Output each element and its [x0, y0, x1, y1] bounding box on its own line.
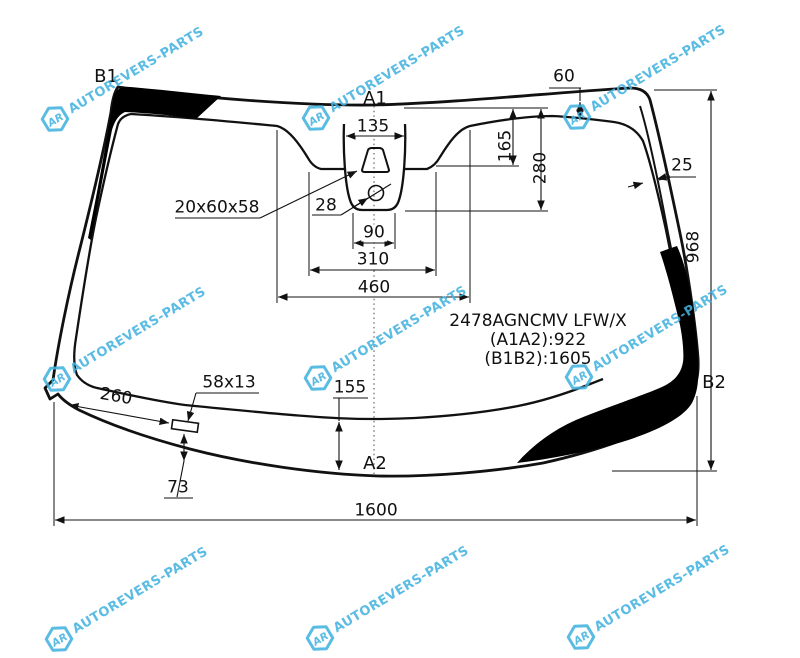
- dim-90: 90: [361, 225, 387, 242]
- mirror-pad: [172, 420, 199, 433]
- diagram-canvas: [0, 0, 800, 600]
- svg-text:AR: AR: [49, 631, 70, 650]
- watermark: AR AUTOREVERS-PARTS: [562, 618, 600, 656]
- frit-band-inner-edge-top: [131, 114, 344, 169]
- dim-155: 155: [334, 380, 366, 397]
- axis-label-b2: B2: [702, 374, 726, 392]
- camera-window: [362, 148, 389, 172]
- part-a1a2-length: (A1A2):922: [449, 331, 627, 350]
- axis-label-a2: A2: [363, 455, 387, 473]
- dim-280: 280: [533, 152, 550, 184]
- dim-25: 25: [671, 158, 693, 175]
- axis-label-b1: B1: [94, 68, 118, 86]
- dim-60: 60: [553, 69, 575, 86]
- dim-310: 310: [355, 252, 391, 269]
- dim-28: 28: [315, 198, 337, 215]
- windshield-diagram: 1600 968 460 310 90 135 165 280 60 25 15…: [0, 0, 800, 600]
- dim-73: 73: [167, 480, 189, 497]
- dim-total-height: 968: [686, 231, 703, 263]
- svg-text:AR: AR: [571, 629, 592, 648]
- watermark: AR AUTOREVERS-PARTS: [40, 620, 78, 658]
- dim-165: 165: [498, 130, 515, 162]
- svg-text:AR: AR: [310, 630, 331, 649]
- watermark-ar-logo-icon: AR: [40, 620, 78, 658]
- dim-total-width: 1600: [354, 503, 397, 520]
- part-b1b2-length: (B1B2):1605: [449, 350, 627, 369]
- camera-slot-outline: [344, 124, 406, 210]
- watermark-ar-logo-icon: AR: [301, 619, 339, 657]
- part-number: 2478AGNCMV LFW/X: [449, 312, 627, 331]
- watermark: AR AUTOREVERS-PARTS: [301, 619, 339, 657]
- dim-135: 135: [355, 119, 391, 136]
- watermark-ar-logo-icon: AR: [562, 618, 600, 656]
- dim-bracket-20x60x58: 20x60x58: [174, 200, 259, 217]
- part-info: 2478AGNCMV LFW/X (A1A2):922 (B1B2):1605: [449, 312, 627, 369]
- daylight-opening-line: [74, 114, 603, 419]
- axis-label-a1: A1: [363, 90, 387, 108]
- dim-pad-58x13: 58x13: [202, 375, 255, 392]
- dim-460: 460: [356, 280, 392, 297]
